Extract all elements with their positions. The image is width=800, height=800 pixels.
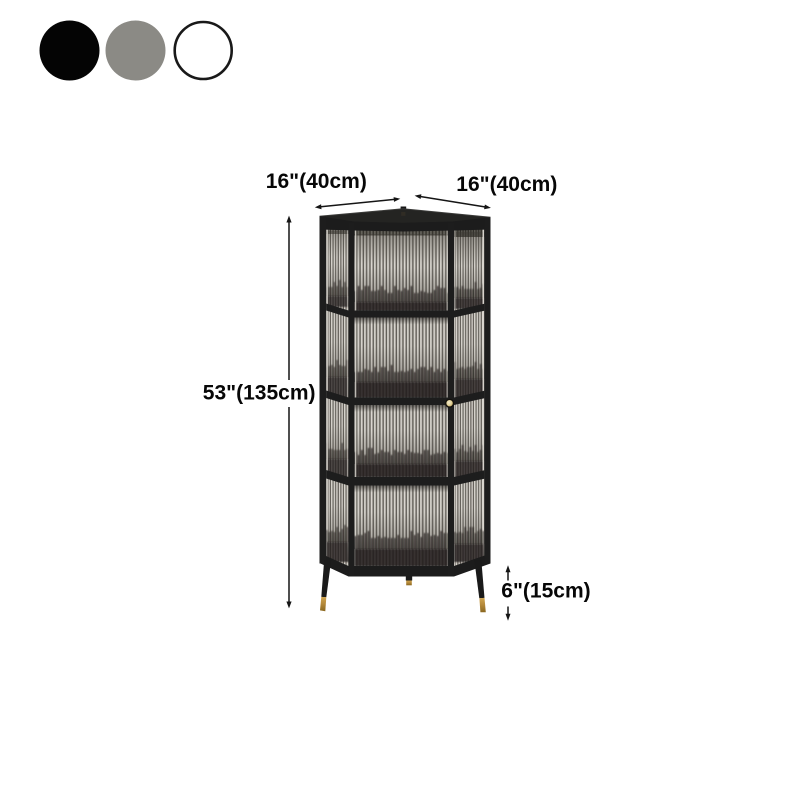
svg-text:16"(40cm): 16"(40cm) — [266, 170, 367, 193]
svg-text:53"(135cm): 53"(135cm) — [203, 382, 316, 405]
svg-text:6"(15cm): 6"(15cm) — [501, 580, 590, 603]
svg-text:16"(40cm): 16"(40cm) — [456, 173, 557, 196]
